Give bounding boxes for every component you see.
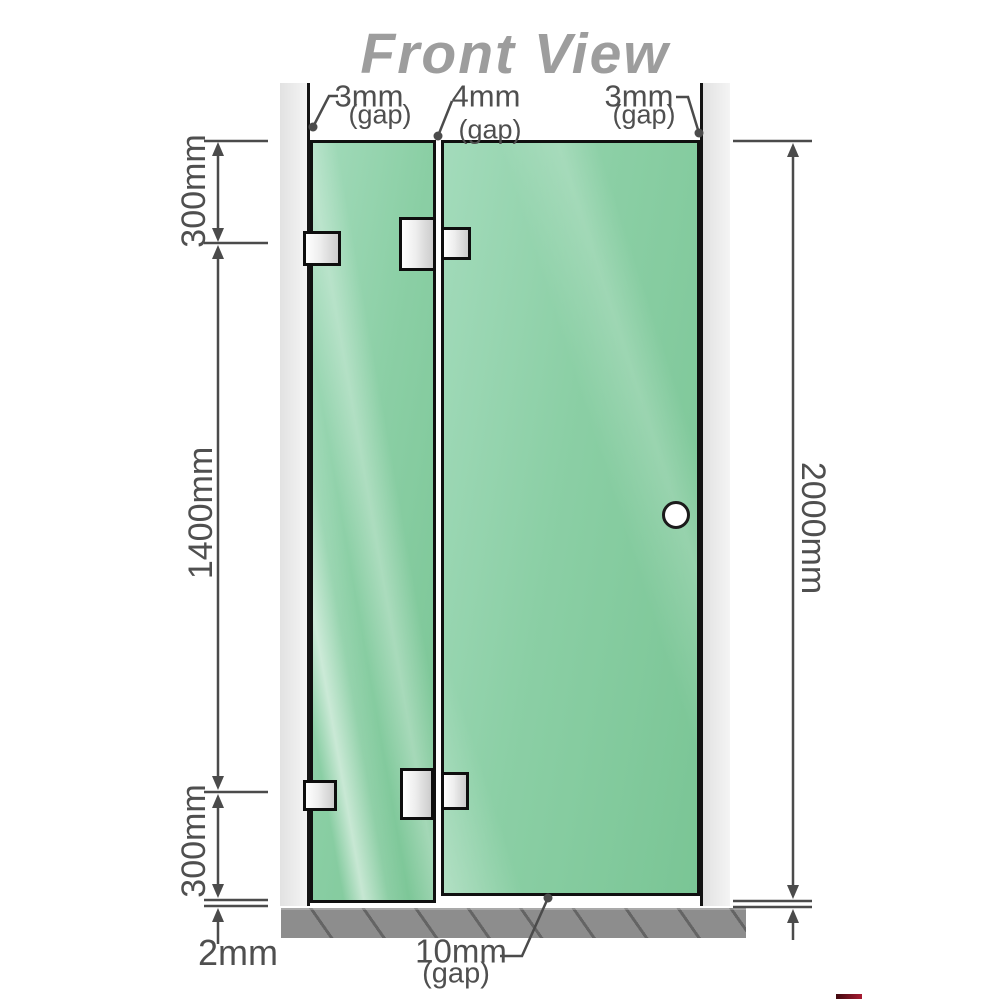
- extension-ticks: [204, 96, 812, 956]
- gap-label-right-note: (gap): [612, 102, 675, 129]
- dimension-floor-gap-2mm: 2mm: [198, 935, 278, 971]
- dimension-bottom-300mm: 300mm: [177, 784, 211, 897]
- gap-label-left-note: (gap): [348, 102, 411, 129]
- dimension-top-300mm: 300mm: [177, 134, 211, 247]
- dimension-total-2000mm: 2000mm: [796, 462, 830, 594]
- diagram-title: Front View: [360, 21, 669, 87]
- dimension-lines: [0, 0, 1000, 1000]
- shower-screen-front-view-diagram: Front View: [0, 0, 1000, 1000]
- dimension-middle-1400mm: 1400mm: [184, 447, 218, 579]
- gap-label-middle-note: (gap): [458, 117, 521, 144]
- gap-label-bottom-note: (gap): [422, 960, 490, 989]
- dimension-arrowheads: [212, 123, 799, 924]
